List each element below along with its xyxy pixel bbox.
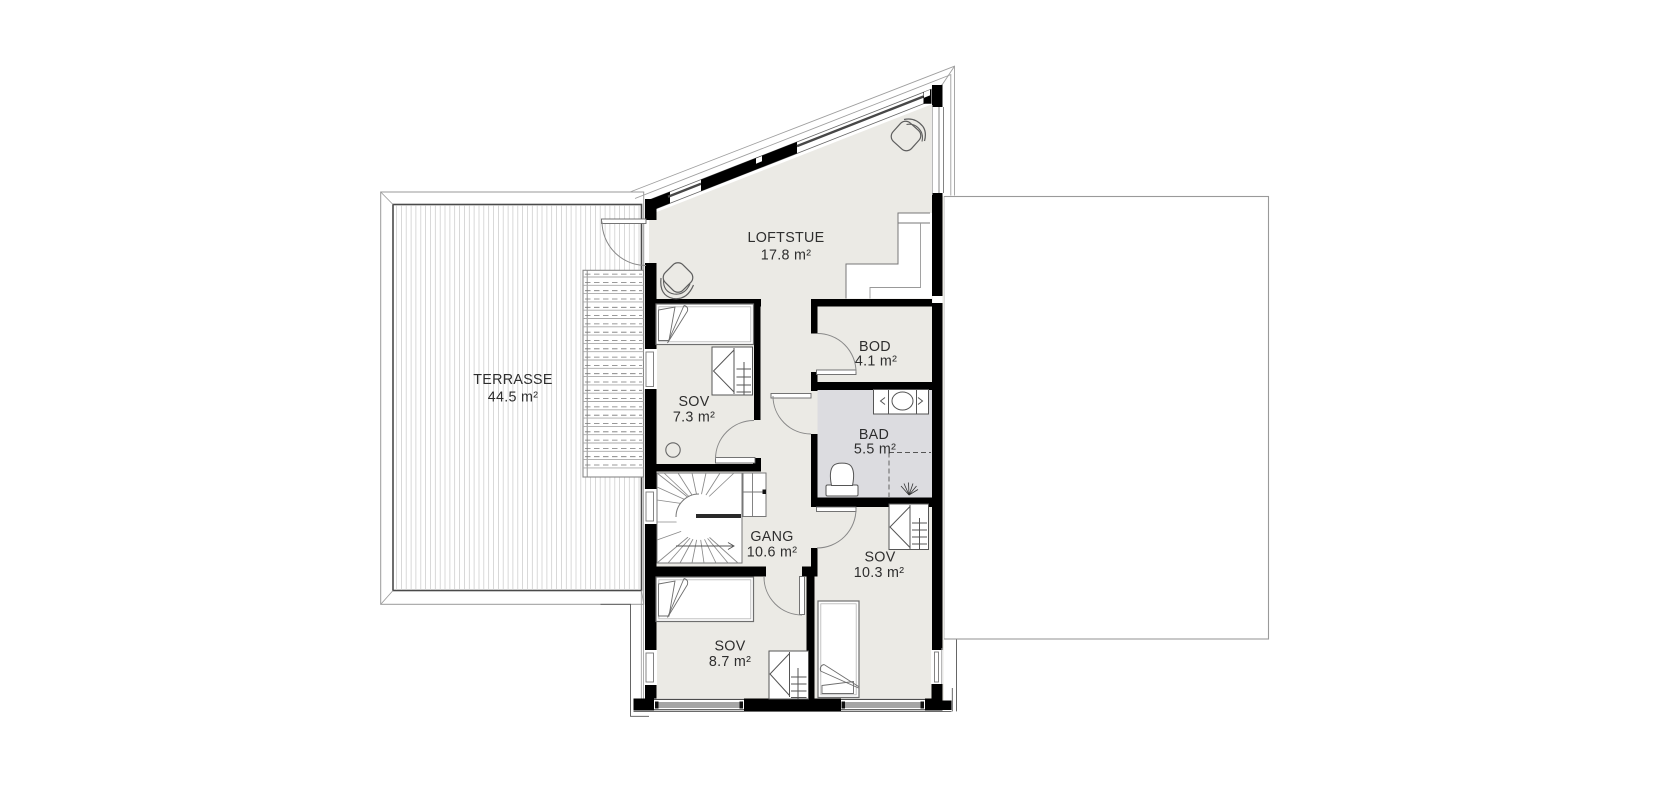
svg-text:GANG: GANG bbox=[750, 529, 793, 545]
svg-text:LOFTSTUE: LOFTSTUE bbox=[747, 230, 824, 246]
svg-text:44.5 m²: 44.5 m² bbox=[488, 390, 539, 406]
svg-text:TERRASSE: TERRASSE bbox=[473, 372, 552, 388]
svg-text:17.8 m²: 17.8 m² bbox=[761, 248, 812, 264]
svg-text:10.6 m²: 10.6 m² bbox=[747, 545, 798, 561]
svg-text:8.7 m²: 8.7 m² bbox=[709, 654, 751, 670]
svg-text:5.5 m²: 5.5 m² bbox=[854, 442, 896, 458]
svg-text:7.3 m²: 7.3 m² bbox=[673, 410, 715, 426]
svg-text:SOV: SOV bbox=[678, 394, 709, 410]
svg-text:10.3 m²: 10.3 m² bbox=[854, 565, 905, 581]
svg-text:4.1 m²: 4.1 m² bbox=[855, 354, 897, 370]
svg-text:SOV: SOV bbox=[864, 550, 895, 566]
svg-text:SOV: SOV bbox=[714, 639, 745, 655]
